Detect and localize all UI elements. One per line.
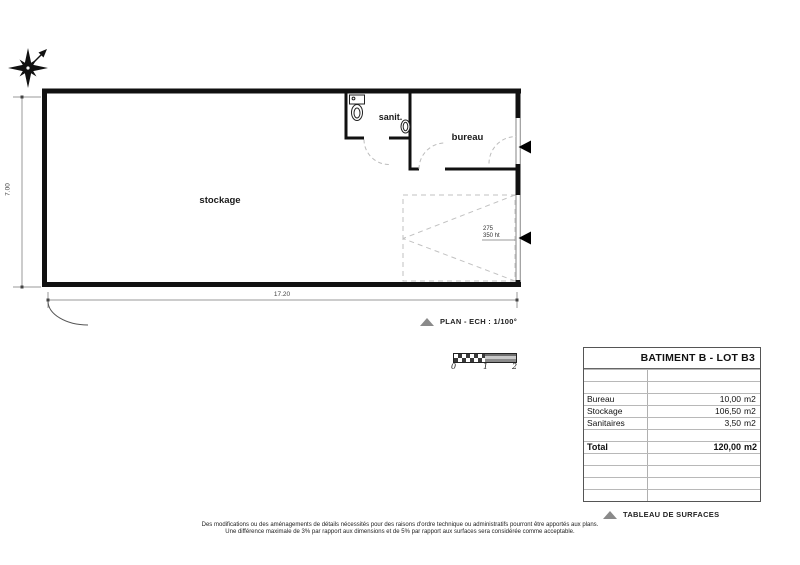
table-marker-triangle-icon (603, 511, 617, 519)
dimension-height-label: 7.00 (5, 173, 12, 207)
footnote: Des modifications ou des aménagements de… (0, 522, 800, 536)
table-row-bureau: Bureau 10,00 m2 (584, 393, 760, 405)
room-label-stockage: stockage (180, 195, 260, 206)
dimension-width-label: 17.20 (262, 291, 302, 298)
dimension-ticks (21, 96, 519, 302)
room-label-sanit: sanit. (363, 112, 418, 122)
scale-tick-0: 0 (451, 362, 456, 371)
garage-door-dimensions: 275 350 ht (483, 226, 515, 239)
table-row-stockage: Stockage 106,50 m2 (584, 405, 760, 417)
scale-bar-checker-segment (454, 354, 485, 362)
surface-table: BATIMENT B - LOT B3 Bureau 10,00 m2 Stoc… (583, 347, 761, 502)
scale-tick-2: 2 (512, 362, 517, 371)
table-caption: TABLEAU DE SURFACES (603, 510, 719, 519)
table-row-empty (584, 477, 760, 489)
scale-bar-solid-segment (485, 354, 516, 362)
table-caption-label: TABLEAU DE SURFACES (623, 510, 719, 519)
table-row-empty (584, 369, 760, 381)
exterior-walls (42, 89, 521, 288)
plan-caption: PLAN - ECH : 1/100° (420, 317, 517, 326)
footnote-line-1: Des modifications ou des aménagements de… (0, 522, 800, 529)
table-row-empty (584, 465, 760, 477)
interior-walls (345, 91, 517, 171)
footnote-line-2: Une différence maximale de 3% par rappor… (0, 529, 800, 536)
table-row-empty (584, 489, 760, 501)
surface-table-title: BATIMENT B - LOT B3 (584, 348, 760, 369)
table-row-empty (584, 453, 760, 465)
plan-caption-label: PLAN - ECH : 1/100° (440, 317, 517, 326)
table-row-total: Total 120,00 m2 (584, 441, 760, 453)
table-row-empty (584, 381, 760, 393)
table-row-sanitaires: Sanitaires 3,50 m2 (584, 417, 760, 429)
table-row-empty (584, 429, 760, 441)
dimension-end-curve (48, 301, 88, 325)
floor-plan-sheet: stockage sanit. bureau 275 350 ht 7.00 1… (0, 0, 800, 565)
plan-marker-triangle-icon (420, 318, 434, 326)
dimension-lines (13, 97, 517, 308)
scale-tick-1: 1 (483, 362, 488, 371)
wall-openings (516, 118, 520, 280)
room-label-bureau: bureau (440, 132, 495, 143)
north-arrow-icon (8, 48, 48, 88)
